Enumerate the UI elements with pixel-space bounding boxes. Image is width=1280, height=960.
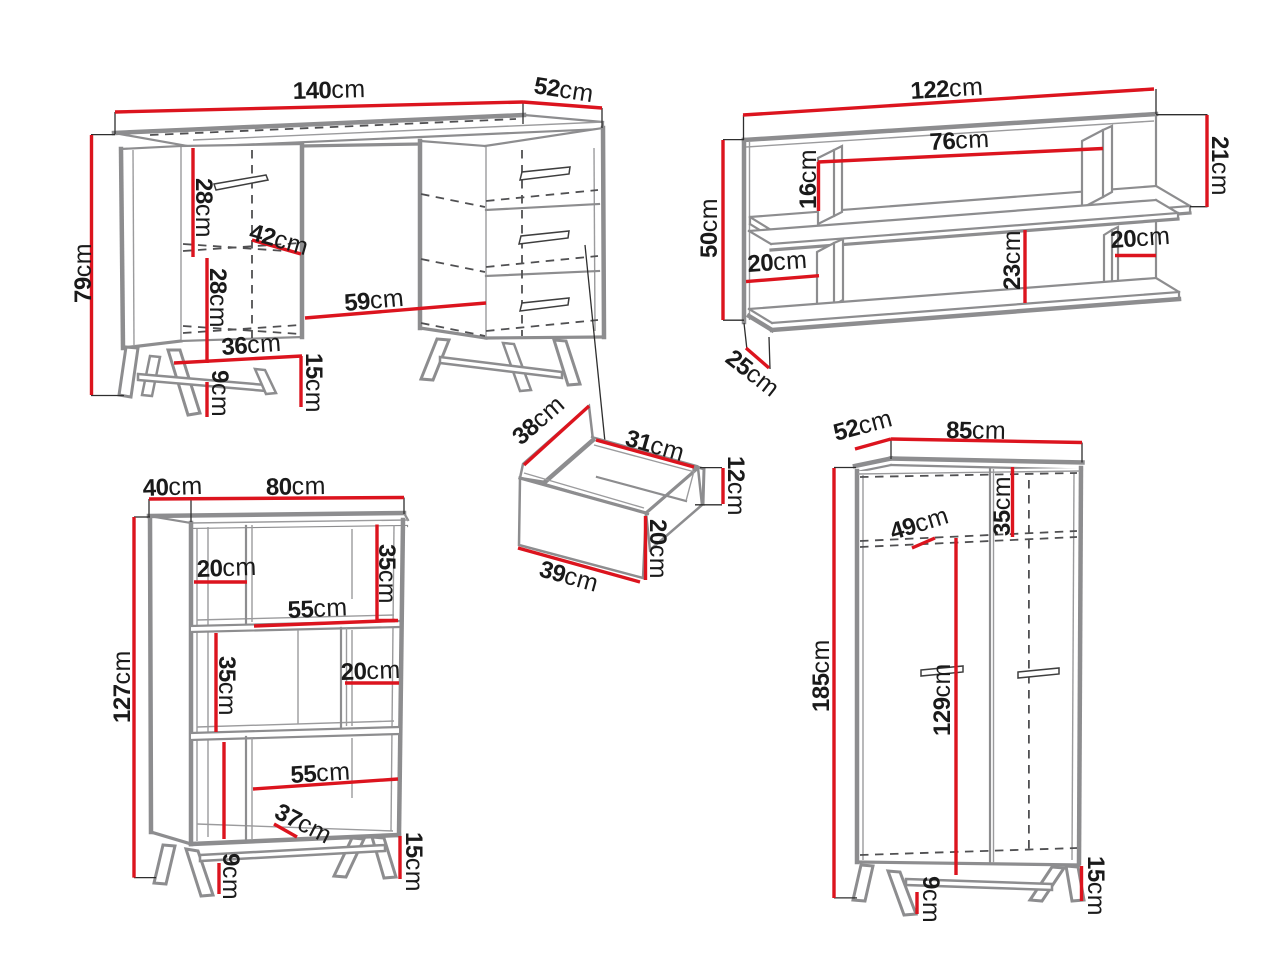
svg-text:9cm: 9cm — [206, 370, 234, 417]
svg-text:55cm: 55cm — [290, 757, 352, 789]
svg-text:15cm: 15cm — [1082, 856, 1110, 916]
svg-text:185cm: 185cm — [807, 639, 835, 712]
svg-text:15cm: 15cm — [300, 353, 328, 413]
svg-text:79cm: 79cm — [69, 243, 97, 303]
svg-text:20cm: 20cm — [340, 656, 401, 686]
svg-text:20cm: 20cm — [196, 553, 257, 583]
svg-text:76cm: 76cm — [929, 125, 990, 156]
svg-text:40cm: 40cm — [142, 472, 203, 502]
svg-text:35cm: 35cm — [373, 544, 401, 604]
svg-text:127cm: 127cm — [108, 650, 136, 723]
svg-text:15cm: 15cm — [400, 832, 428, 892]
svg-text:12cm: 12cm — [722, 456, 750, 516]
svg-text:122cm: 122cm — [910, 73, 984, 105]
svg-text:35cm: 35cm — [988, 476, 1016, 536]
svg-text:55cm: 55cm — [287, 593, 348, 624]
svg-text:35cm: 35cm — [213, 656, 241, 716]
svg-text:59cm: 59cm — [343, 284, 405, 317]
svg-text:80cm: 80cm — [266, 472, 327, 501]
svg-text:36cm: 36cm — [220, 329, 282, 361]
svg-text:85cm: 85cm — [946, 416, 1007, 445]
svg-text:50cm: 50cm — [695, 198, 723, 258]
svg-text:23cm: 23cm — [998, 230, 1026, 290]
svg-text:9cm: 9cm — [917, 876, 945, 923]
svg-text:28cm: 28cm — [204, 268, 232, 328]
svg-text:21cm: 21cm — [1206, 136, 1234, 196]
svg-text:20cm: 20cm — [746, 246, 808, 278]
svg-text:9cm: 9cm — [217, 853, 245, 900]
svg-text:20cm: 20cm — [644, 519, 672, 579]
svg-text:20cm: 20cm — [1109, 222, 1171, 254]
svg-text:16cm: 16cm — [794, 149, 822, 209]
svg-text:28cm: 28cm — [190, 178, 218, 238]
svg-text:140cm: 140cm — [292, 75, 366, 105]
svg-text:129cm: 129cm — [928, 663, 956, 736]
